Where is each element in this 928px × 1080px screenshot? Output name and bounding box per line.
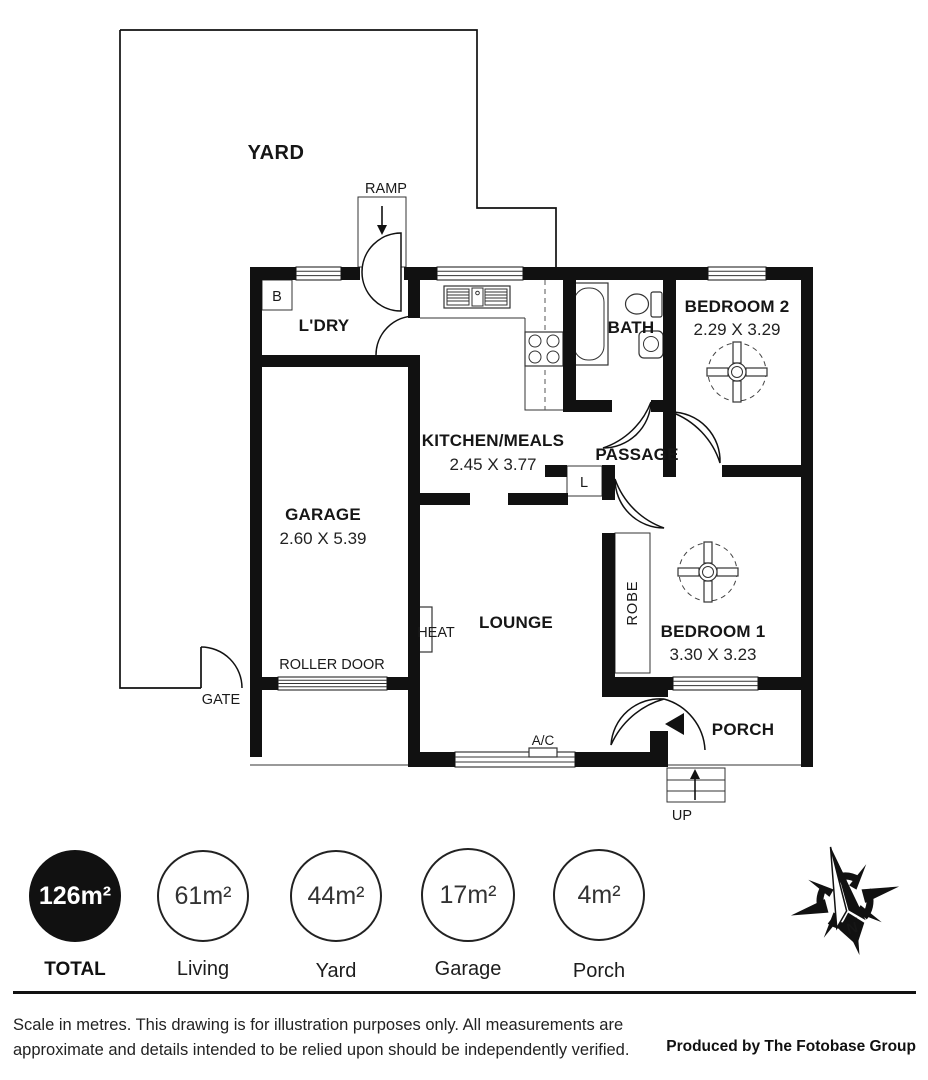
area-living-label: Living bbox=[177, 958, 229, 980]
gate-swing-arc bbox=[201, 647, 242, 688]
passage-label: PASSAGE bbox=[595, 445, 678, 464]
kitchen-bench bbox=[420, 280, 563, 410]
area-garage-label: Garage bbox=[435, 958, 502, 980]
labels: YARD RAMP L'DRY KITCHEN/MEALS 2.45 X 3.7… bbox=[202, 142, 790, 824]
laundry-window bbox=[296, 267, 341, 280]
area-total: 126m² TOTAL bbox=[29, 850, 121, 980]
floor-plan-page: YARD RAMP L'DRY KITCHEN/MEALS 2.45 X 3.7… bbox=[0, 0, 928, 1080]
area-porch: 4m² Porch bbox=[554, 850, 644, 982]
footer: Scale in metres. This drawing is for ill… bbox=[13, 991, 916, 1059]
area-yard-value: 44m² bbox=[308, 882, 365, 910]
ramp-arrow-icon bbox=[377, 225, 387, 235]
bedroom1-window bbox=[673, 677, 758, 690]
porch-steps bbox=[667, 768, 725, 802]
area-living: 61m² Living bbox=[158, 851, 248, 980]
kitchen-window bbox=[437, 267, 523, 280]
heat-label: HEAT bbox=[417, 625, 455, 641]
boiler-label: B bbox=[272, 289, 282, 305]
footer-divider bbox=[13, 991, 916, 994]
bedroom2-label: BEDROOM 2 bbox=[685, 297, 790, 316]
area-total-label: TOTAL bbox=[44, 959, 106, 980]
ceiling-fan-bedroom1 bbox=[678, 542, 738, 602]
bedroom2-window bbox=[708, 267, 766, 280]
kitchen-dims: 2.45 X 3.77 bbox=[450, 455, 537, 474]
roller-door-panel bbox=[278, 677, 387, 690]
bedroom2-dims: 2.29 X 3.29 bbox=[694, 320, 781, 339]
laundry-door bbox=[376, 316, 415, 355]
lounge-label: LOUNGE bbox=[479, 613, 553, 632]
left-exterior-wall bbox=[250, 267, 262, 757]
robe-label: ROBE bbox=[625, 580, 641, 625]
yard-label: YARD bbox=[248, 142, 305, 164]
bath-label: BATH bbox=[608, 318, 655, 337]
porch-label: PORCH bbox=[712, 720, 774, 739]
kitchen-label: KITCHEN/MEALS bbox=[422, 431, 564, 450]
entry-door bbox=[362, 233, 401, 311]
roller-door-label: ROLLER DOOR bbox=[279, 657, 385, 673]
up-label: UP bbox=[672, 808, 692, 824]
ldry-label: L'DRY bbox=[299, 316, 350, 335]
area-garage: 17m² Garage bbox=[422, 849, 514, 980]
area-yard-label: Yard bbox=[316, 960, 357, 982]
area-porch-value: 4m² bbox=[577, 881, 620, 909]
disclaimer-line1: Scale in metres. This drawing is for ill… bbox=[13, 1016, 623, 1034]
bedroom1-dims: 3.30 X 3.23 bbox=[670, 645, 757, 664]
steps-up-arrow-icon bbox=[690, 769, 700, 779]
area-total-value: 126m² bbox=[39, 882, 111, 910]
area-yard: 44m² Yard bbox=[291, 851, 381, 982]
producer-credit: Produced by The Fotobase Group bbox=[666, 1038, 916, 1055]
floor-plan-canvas: YARD RAMP L'DRY KITCHEN/MEALS 2.45 X 3.7… bbox=[0, 0, 928, 1080]
gate-label: GATE bbox=[202, 692, 241, 708]
garage-dims: 2.60 X 5.39 bbox=[280, 529, 367, 548]
toilet bbox=[626, 292, 663, 317]
ceiling-fan-bedroom2 bbox=[707, 342, 767, 402]
garage-label: GARAGE bbox=[285, 505, 361, 524]
area-porch-label: Porch bbox=[573, 960, 625, 982]
linen-label: L bbox=[580, 475, 588, 491]
ramp-label: RAMP bbox=[365, 181, 407, 197]
area-living-value: 61m² bbox=[175, 882, 232, 910]
ac-unit bbox=[529, 748, 557, 757]
disclaimer-line2: approximate and details intended to be r… bbox=[13, 1041, 629, 1059]
area-summary: 126m² TOTAL 61m² Living 44m² Yard 17m² G… bbox=[29, 849, 644, 982]
area-garage-value: 17m² bbox=[440, 881, 497, 909]
compass-north-icon: N bbox=[776, 832, 913, 969]
bedroom1-label: BEDROOM 1 bbox=[661, 622, 766, 641]
bedroom1-door bbox=[615, 479, 664, 528]
right-exterior-wall bbox=[801, 267, 813, 767]
ac-label: A/C bbox=[532, 733, 555, 748]
